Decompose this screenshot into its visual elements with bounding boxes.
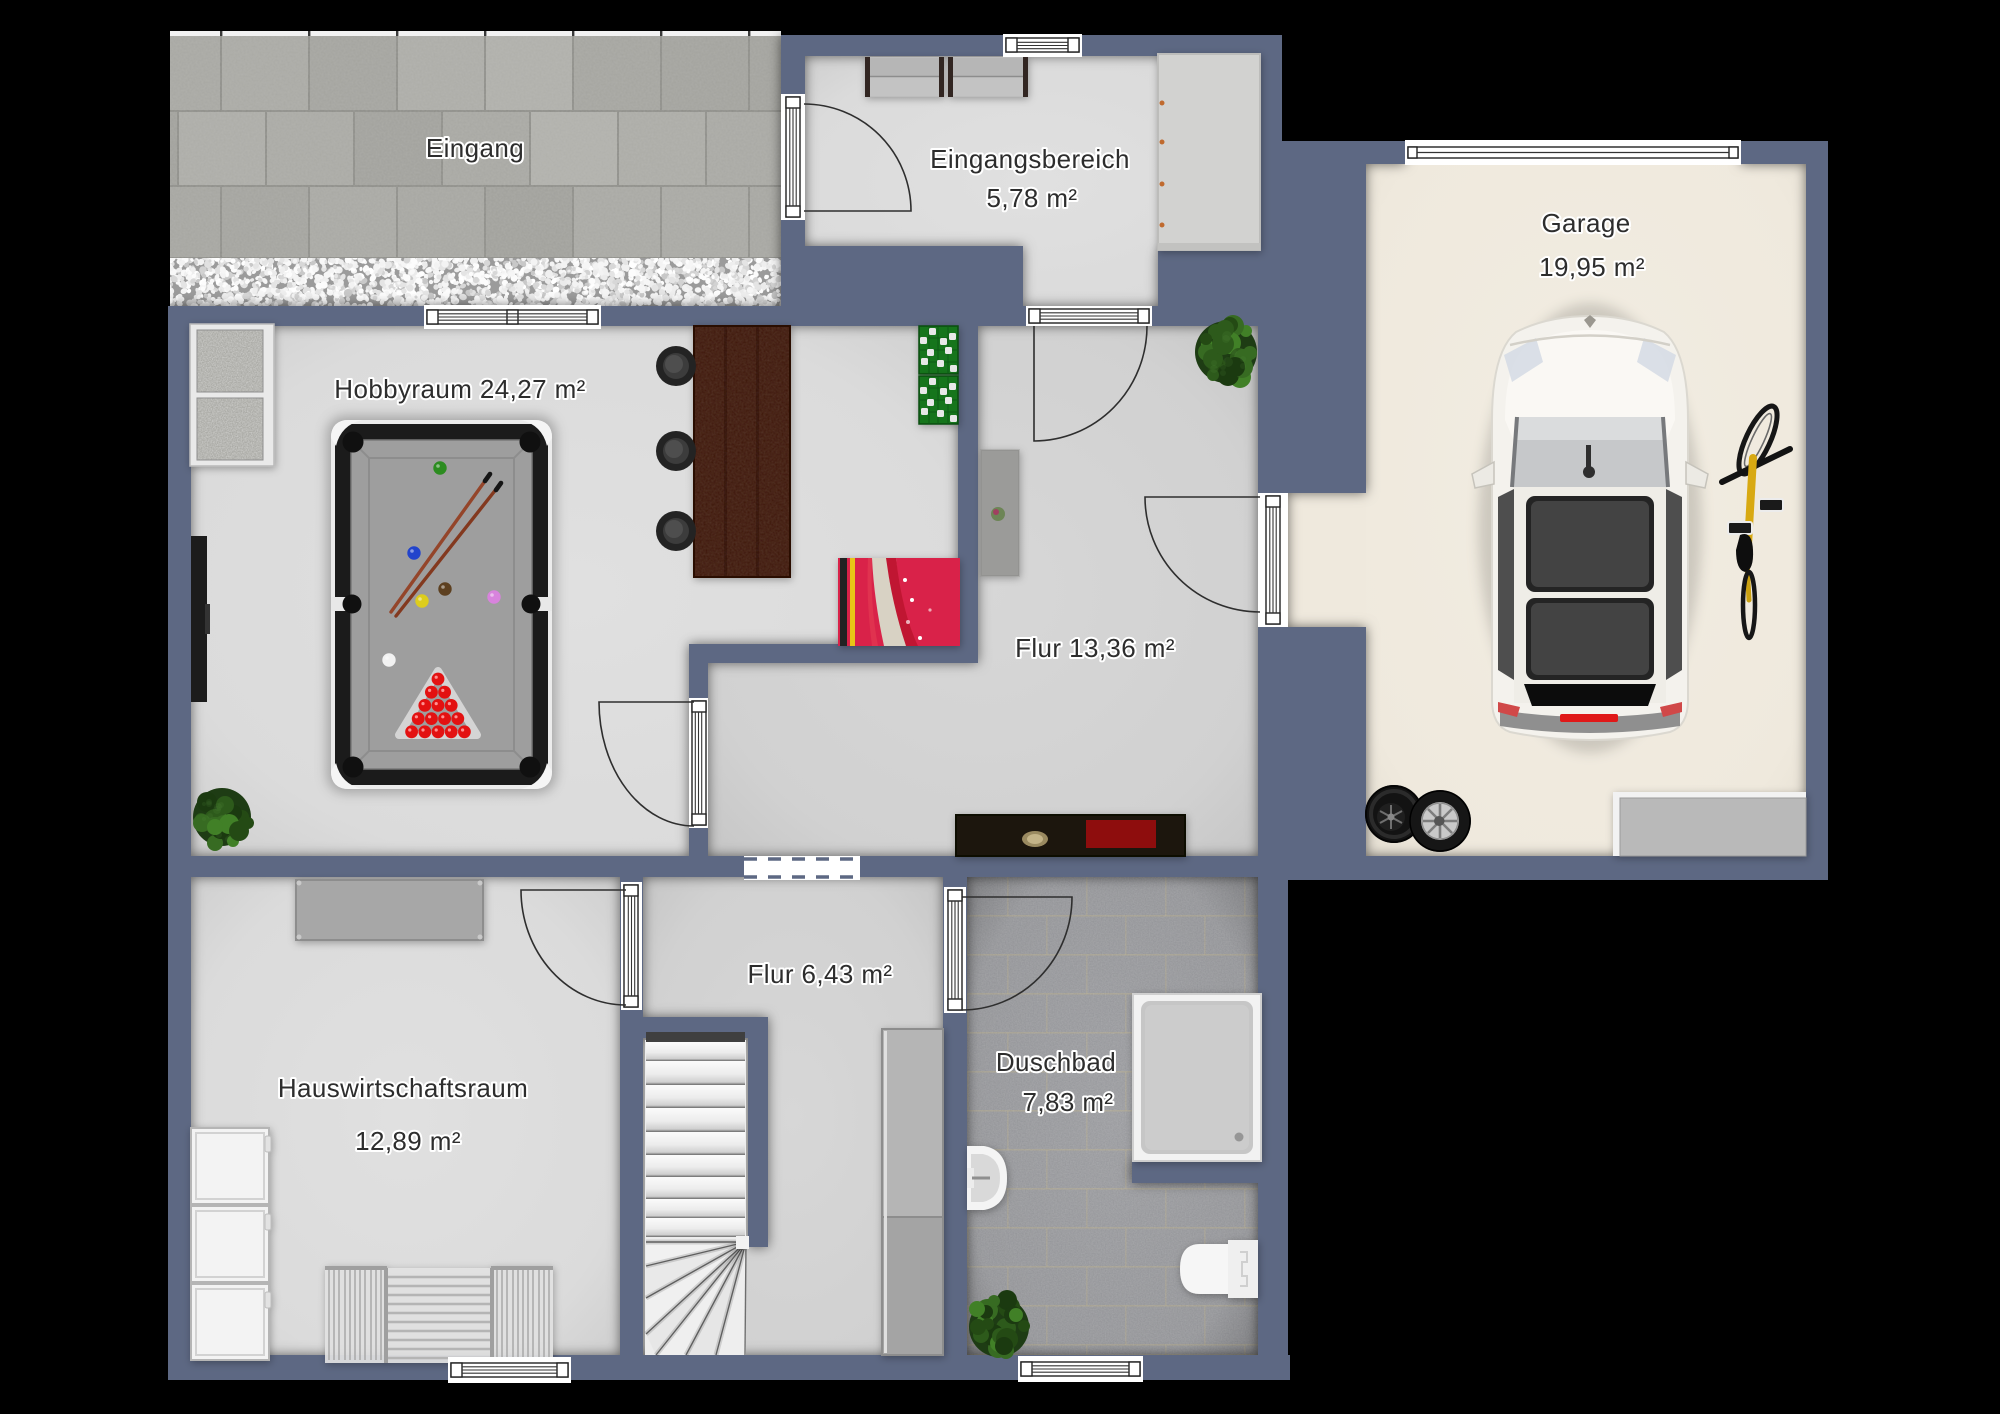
- svg-text:Eingang: Eingang: [426, 133, 524, 163]
- svg-text:12,89 m²: 12,89 m²: [355, 1126, 461, 1156]
- svg-text:Eingangsbereich: Eingangsbereich: [930, 144, 1130, 174]
- svg-text:Duschbad: Duschbad: [996, 1047, 1116, 1077]
- svg-text:Garage: Garage: [1541, 208, 1630, 238]
- svg-text:5,78 m²: 5,78 m²: [987, 183, 1078, 213]
- svg-text:Flur 13,36 m²: Flur 13,36 m²: [1015, 633, 1175, 663]
- svg-text:Hobbyraum 24,27 m²: Hobbyraum 24,27 m²: [334, 374, 585, 404]
- svg-text:Flur 6,43 m²: Flur 6,43 m²: [748, 959, 893, 989]
- svg-text:Hauswirtschaftsraum: Hauswirtschaftsraum: [278, 1073, 528, 1103]
- svg-text:19,95 m²: 19,95 m²: [1539, 252, 1645, 282]
- svg-text:7,83 m²: 7,83 m²: [1023, 1087, 1114, 1117]
